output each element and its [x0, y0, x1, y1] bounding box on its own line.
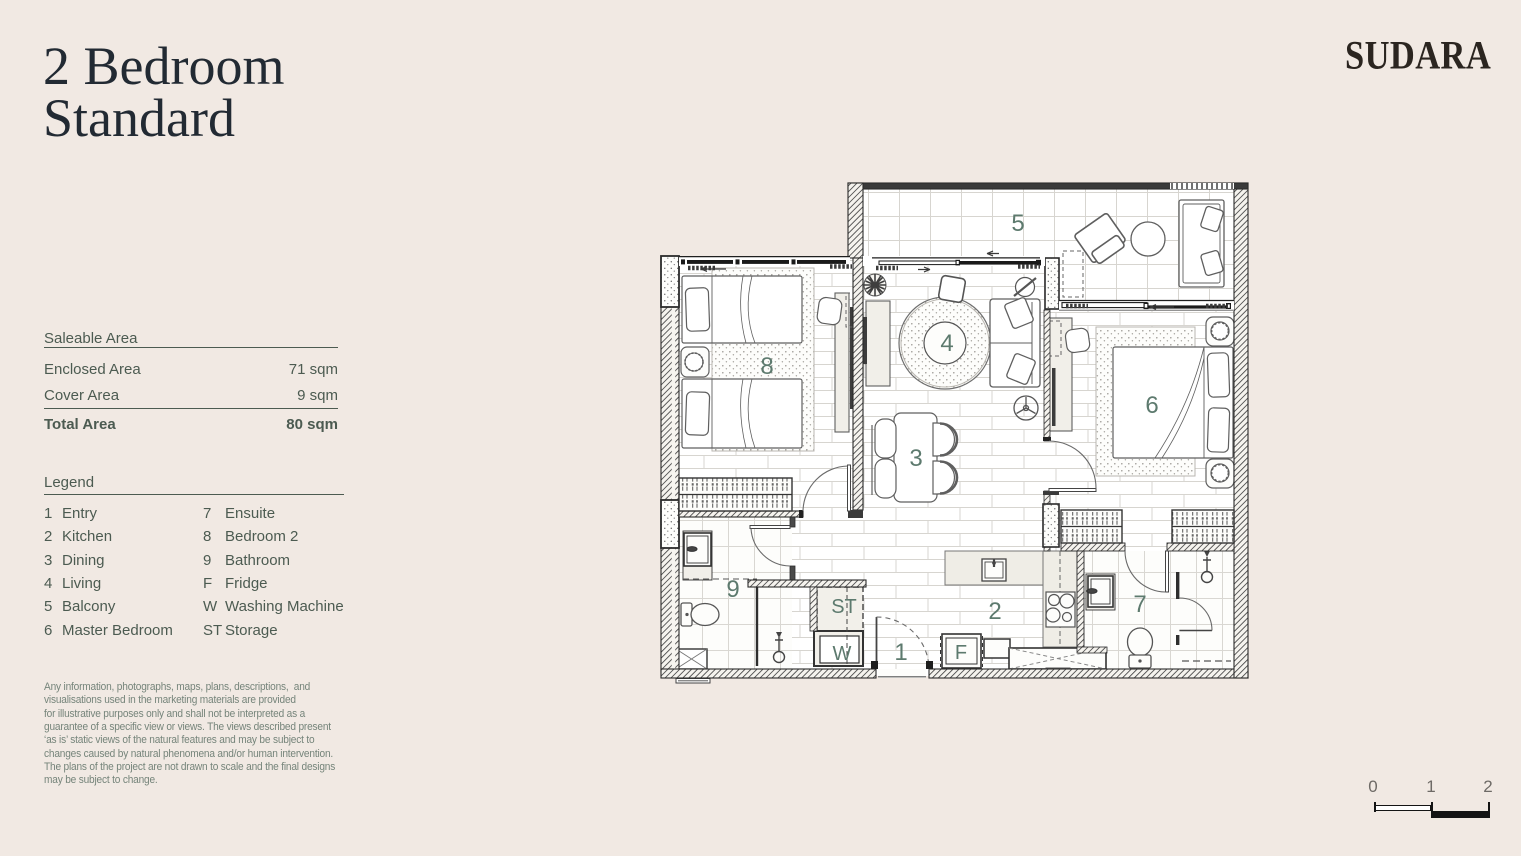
svg-text:ST: ST [831, 596, 857, 618]
svg-text:5: 5 [1011, 210, 1024, 237]
svg-text:1: 1 [894, 639, 907, 666]
svg-text:4: 4 [940, 330, 953, 357]
svg-text:2: 2 [988, 598, 1001, 625]
svg-text:6: 6 [1145, 392, 1158, 419]
svg-text:7: 7 [1133, 591, 1146, 618]
svg-text:3: 3 [909, 445, 922, 472]
svg-text:F: F [955, 642, 967, 664]
svg-text:9: 9 [726, 576, 739, 603]
svg-text:W: W [833, 643, 852, 665]
svg-text:8: 8 [760, 353, 773, 380]
